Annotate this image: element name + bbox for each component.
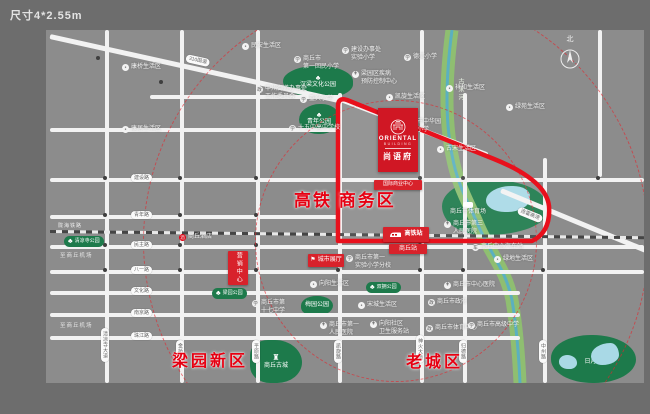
poi-school: 商丘市高级中学 <box>468 322 519 330</box>
hospital-icon <box>320 322 327 329</box>
sports-icon <box>426 325 433 332</box>
poi-residential: 绿苑生活区 <box>506 104 545 112</box>
poi-residential: 宋城生活区 <box>358 302 397 310</box>
hospital-icon <box>444 221 451 228</box>
district-label-oldtown: 老城区 <box>406 348 463 372</box>
bus-icon <box>472 244 479 251</box>
poi-hospital: 商丘市中心医院 <box>444 282 495 290</box>
park-liangyuan: ♣梁园公园 <box>212 288 247 299</box>
station-name: 商丘站 <box>389 244 427 254</box>
residential-icon <box>310 281 317 288</box>
road-label: 建设路 <box>131 174 152 182</box>
compass-north-label: 北 <box>567 34 574 44</box>
poi-residential: 古宋生活区 <box>437 146 476 154</box>
flag-icon: ⚑ <box>310 257 315 264</box>
road-label: 珠江路 <box>131 332 152 340</box>
tree-icon: ♣ <box>68 238 73 245</box>
road-label: 南京路 <box>131 309 152 317</box>
school-icon <box>252 300 259 307</box>
road-label: 文化路 <box>131 287 152 295</box>
road-label: 青年路 <box>131 211 152 219</box>
divider <box>385 148 411 149</box>
district-label-liangyuan: 梁园新区 <box>172 347 248 371</box>
residential-icon <box>358 302 365 309</box>
poi-residential: 向阳生活区 <box>310 281 349 289</box>
park-shuangyong: ♣双拥公园 <box>366 282 401 293</box>
compass-icon <box>559 45 581 71</box>
poi-school: 商丘市第十七中学 <box>252 300 285 316</box>
poi-school: 德美小学 <box>404 54 437 62</box>
poi-school: 商丘市第一回民小学 <box>294 56 339 72</box>
tree-icon: ♣ <box>370 284 375 291</box>
poi-hotel: 商丘酒店 <box>179 234 212 242</box>
poi-residential: 民安生活区 <box>242 43 281 51</box>
project-logo-block: ORIENTAL BUILDING 尚语府 <box>378 108 418 172</box>
train-icon <box>389 231 402 239</box>
poi-residential: 绿地生活区 <box>494 256 533 264</box>
size-note: 尺寸4*2.55m <box>10 7 83 23</box>
road-label: 凯旋路 <box>334 340 342 363</box>
exhibition-hall-box: ⚑城市展厅 <box>308 254 344 267</box>
airport-note: 至商丘机场 <box>60 251 93 259</box>
road-label: 民主路 <box>131 241 152 249</box>
school-icon <box>468 322 475 329</box>
poi-school: 建设办事处实验小学 <box>342 47 381 63</box>
road-label: 平原路 <box>252 340 260 363</box>
project-emblem-icon <box>390 119 406 135</box>
residential-icon <box>506 104 513 111</box>
poi-school: 重兴小学 <box>300 96 333 104</box>
poi-hospital: 向阳社区卫生服务站 <box>370 321 409 337</box>
poi-hospital: 梁园区疾病预防控制中心 <box>352 71 397 87</box>
district-label-business: 高铁 商务区 <box>294 186 396 211</box>
school-icon <box>342 47 349 54</box>
hospital-icon <box>444 282 451 289</box>
poi-residential: 凯旋生活区 <box>386 94 425 102</box>
compass: 北 <box>558 34 582 71</box>
residential-icon <box>242 43 249 50</box>
school-icon <box>289 125 296 132</box>
tree-icon: ♣ <box>216 290 221 297</box>
school-icon <box>300 96 307 103</box>
poi-hospital: 商丘市第一人民医院 <box>320 322 359 338</box>
residential-icon <box>446 85 453 92</box>
poi-residential: 康桥生活区 <box>122 64 161 72</box>
poi-school: 十五中高中学校 <box>289 125 340 133</box>
poi-hospital: 商丘市第三人民医院 <box>444 221 483 237</box>
residential-icon <box>494 256 501 263</box>
residential-icon <box>386 94 393 101</box>
marketing-center-box: 营销中心 <box>228 251 248 285</box>
hsr-station-box: 高铁站 <box>383 227 429 242</box>
hotel-icon <box>179 234 186 241</box>
school-icon <box>346 255 353 262</box>
poi-residential: 祥和生活区 <box>446 85 485 93</box>
government-icon <box>256 86 263 93</box>
school-icon <box>294 56 301 63</box>
school-icon <box>404 54 411 61</box>
hospital-icon <box>370 321 377 328</box>
poster-canvas: 尺寸4*2.55m 古宋河 ♣汉梁文化公园 ♣青年公园 人民公园 ♜商丘古城 ♣… <box>0 0 650 414</box>
poi-residential: 康居生活区 <box>122 126 161 134</box>
project-brand-sub: BUILDING <box>384 142 413 146</box>
hospital-icon <box>352 71 359 78</box>
airport-note: 至商丘机场 <box>60 321 93 329</box>
road-label: 中州路 <box>539 340 547 363</box>
stadium-icon <box>463 202 473 208</box>
residential-icon <box>122 64 129 71</box>
road-label: 清凉寺大道 <box>101 328 109 362</box>
park-qingliangsi: ♣清凉寺公园 <box>64 236 104 247</box>
station-tag: 高铁站 <box>404 231 422 238</box>
road-label: 八一路 <box>131 266 152 274</box>
residential-icon <box>437 146 444 153</box>
city-map: 古宋河 ♣汉梁文化公园 ♣青年公园 人民公园 ♜商丘古城 ♣日月湖 梅园公园 <box>46 30 644 383</box>
railway-label: 陇海铁路 <box>58 222 82 229</box>
poi-school: 商丘市第一实验小学分校 <box>346 255 391 271</box>
poi-government: 商丘市政府 <box>428 299 467 307</box>
government-icon <box>428 299 435 306</box>
poi-stadium: 商丘市体育场 <box>450 202 486 217</box>
project-name-cn: 尚语府 <box>383 151 413 162</box>
residential-icon <box>122 126 129 133</box>
poi-bus-station: 商丘中心汽车站 <box>472 244 523 252</box>
